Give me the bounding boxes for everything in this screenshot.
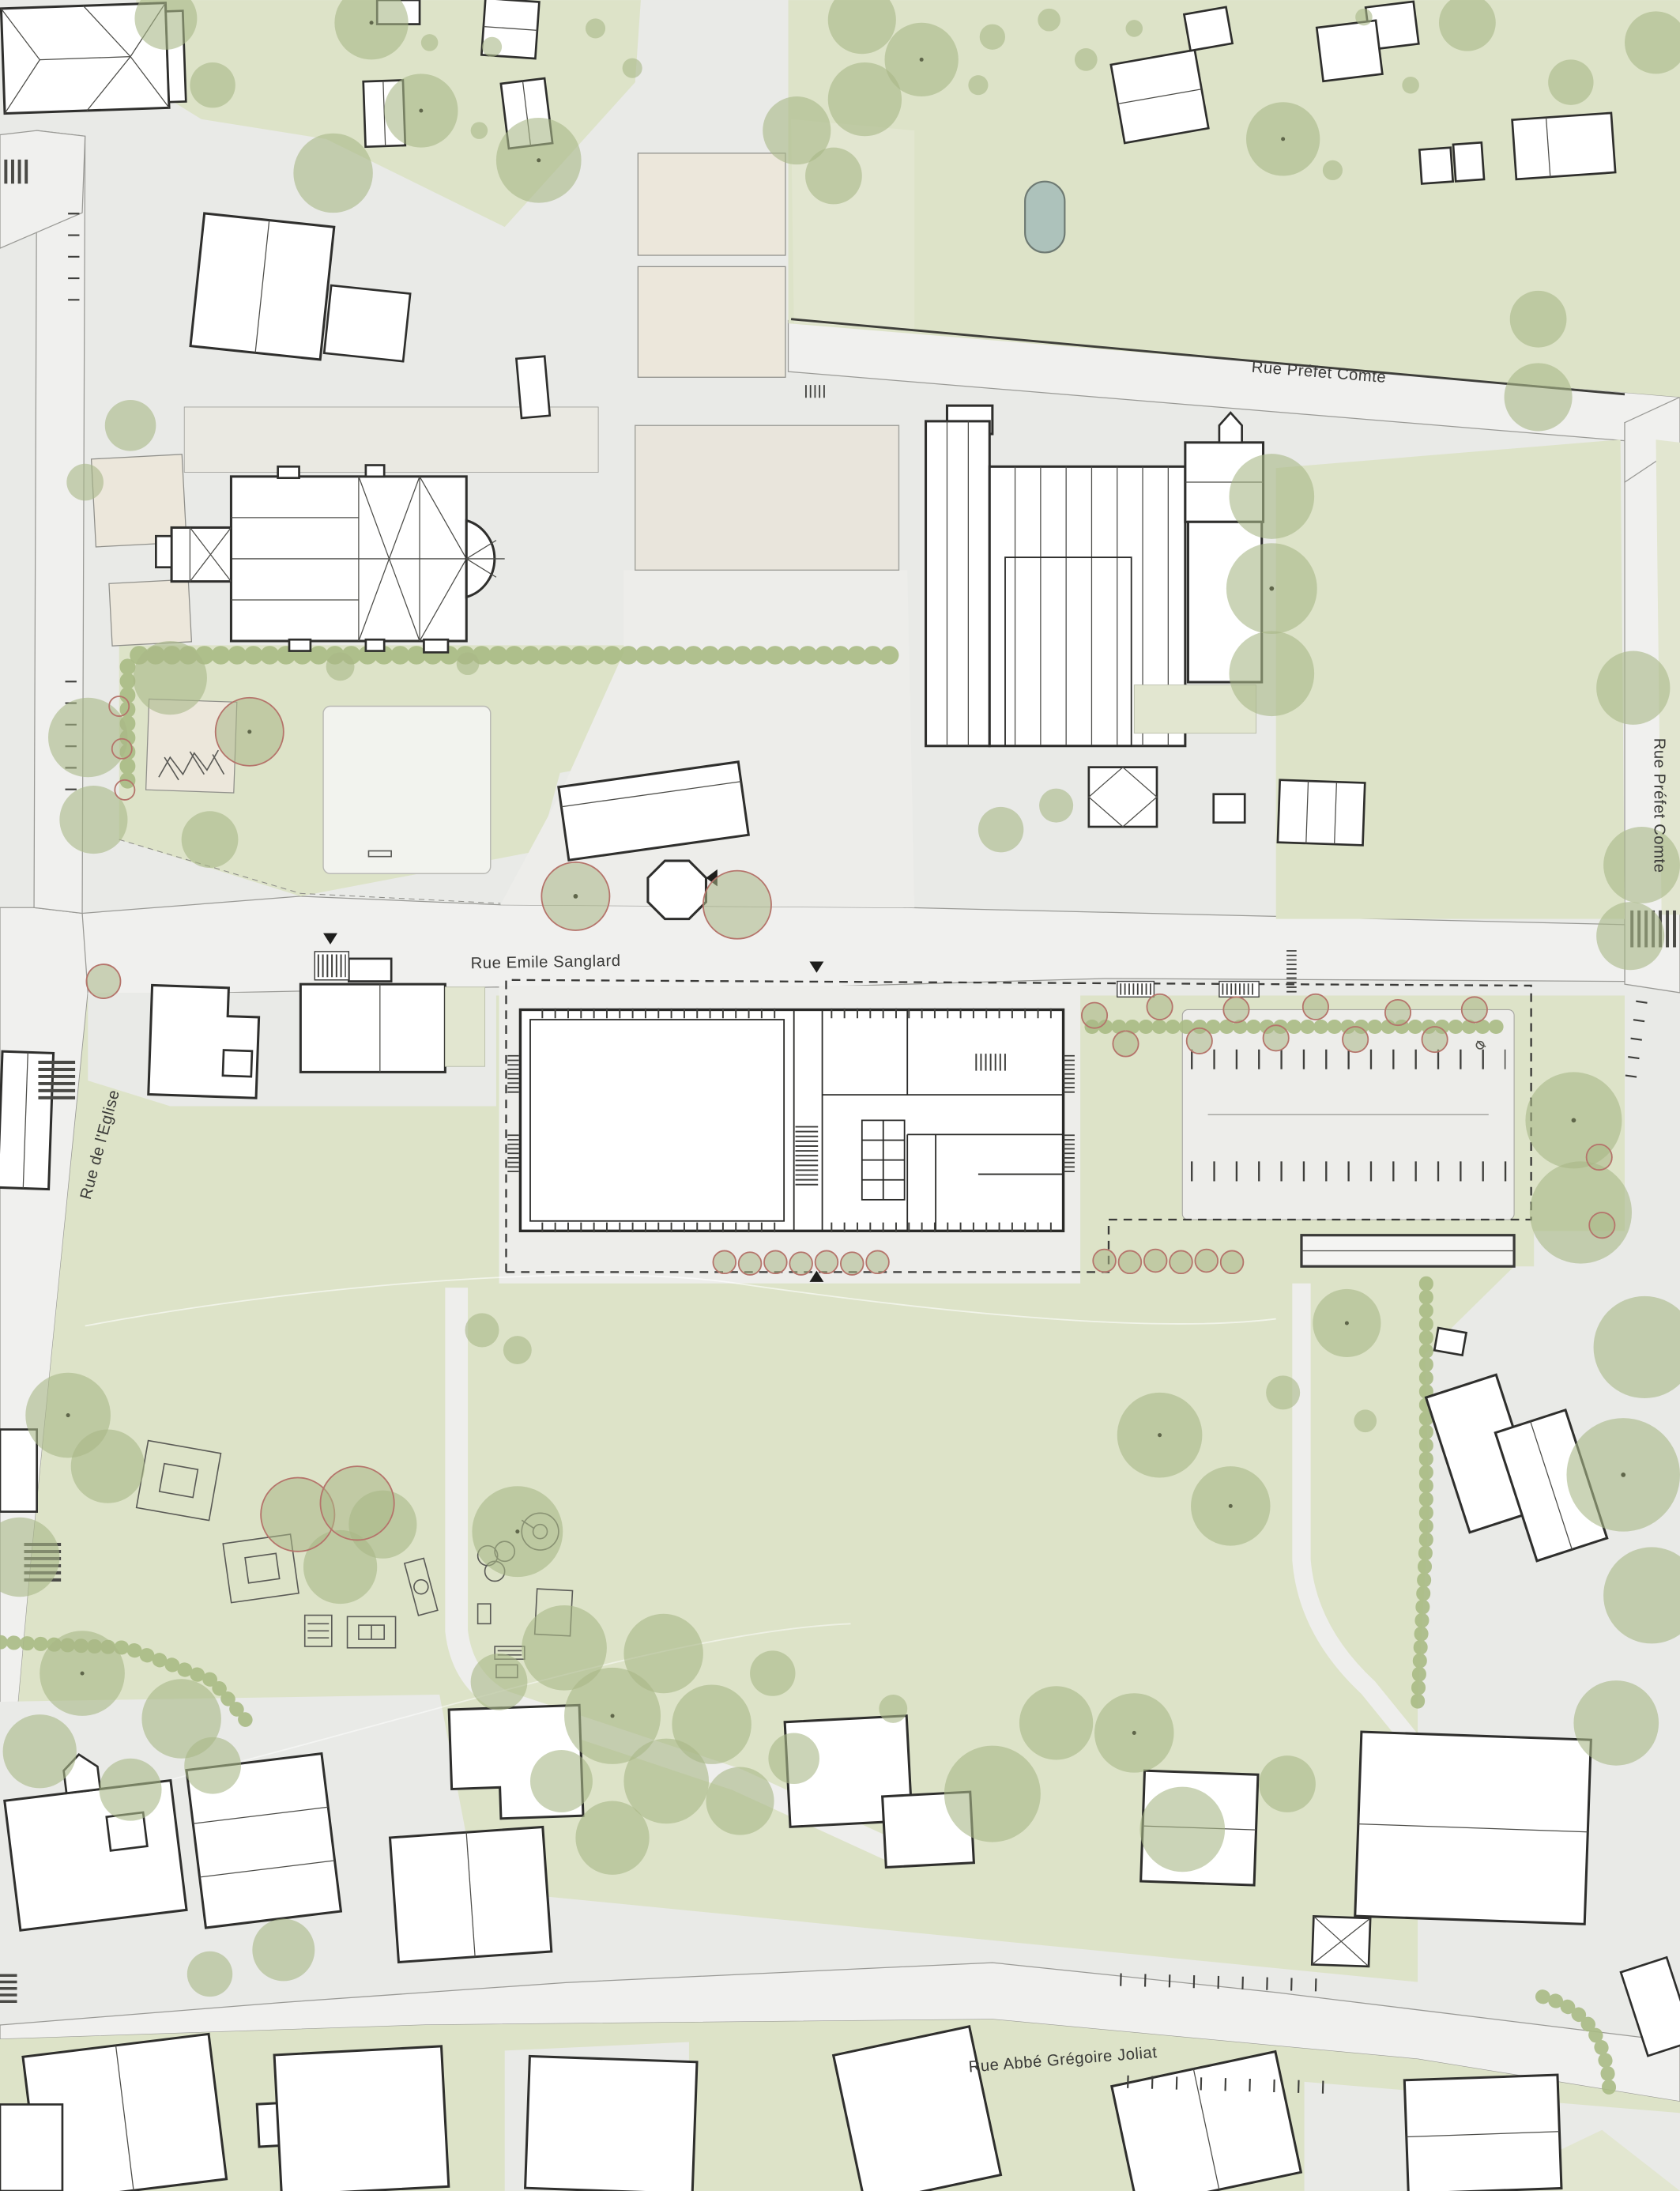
pavilion-octagon [648,861,706,919]
building-annex-south-1 [1089,767,1157,827]
pond [1025,182,1064,253]
building-s3 [525,2056,697,2191]
building-s6 [1404,2075,1561,2191]
building-s7 [0,2104,62,2190]
building-annex-south-2 [1214,794,1245,823]
building-north-of-parvis [516,356,549,418]
site-plan-page: Rue Préfet Comte Rue Préfet Comte Rue Em… [0,0,1680,2191]
label-rue-emile-sanglard: Rue Emile Sanglard [470,952,620,972]
building-west-edge-2 [0,1430,37,1512]
site-plan-map: Rue Préfet Comte Rue Préfet Comte Rue Em… [0,0,1680,2191]
building-se-2 [1355,1732,1591,1924]
garden-play-court [323,707,491,874]
courtyard-square-south [638,266,785,377]
building-center-pair [390,1827,551,1962]
building-s4 [834,2027,1001,2191]
building-west-edge-1 [0,1051,54,1189]
courtyard-square-north [638,153,785,255]
green-east-strip [1276,439,1625,918]
gravel-plaza [635,425,899,570]
beige-terrace-west-2 [109,579,191,646]
building-s2 [254,2046,449,2191]
building-se-gable [1312,1916,1370,1966]
building-shed-east [1434,1328,1466,1356]
building-ne-3 [1512,113,1616,179]
building-ne-4 [1419,142,1484,183]
building-slab-nw-1 [190,213,334,360]
building-slab-nw-2 [324,285,410,361]
building-annex-south-3 [1278,780,1365,846]
label-rue-prefet-comte-right: Rue Préfet Comte [1651,738,1668,873]
